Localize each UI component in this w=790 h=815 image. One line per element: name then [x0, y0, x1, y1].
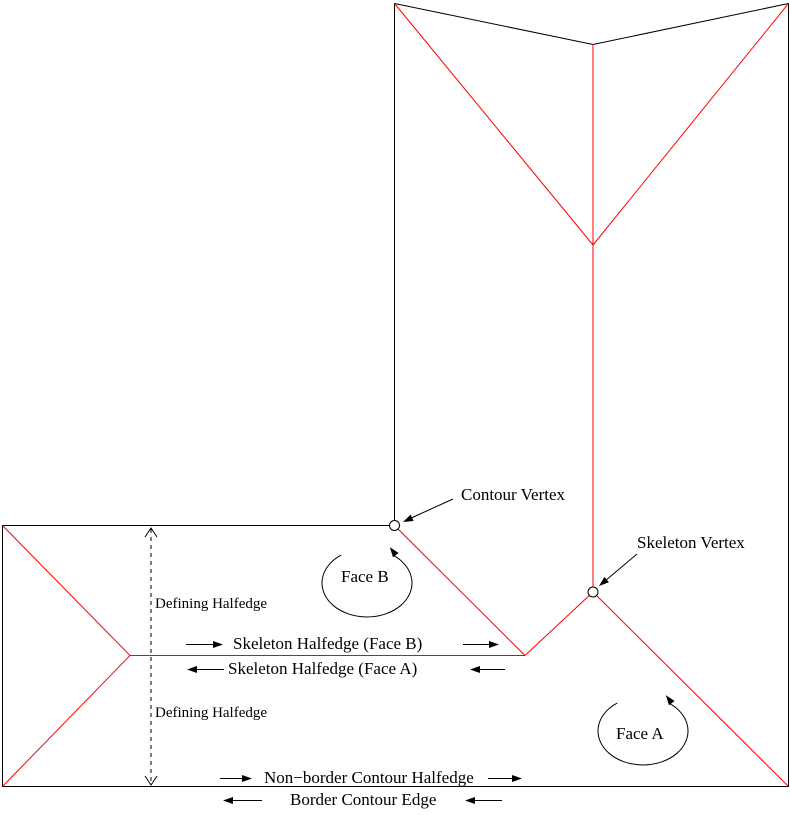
arrowhead-icon: [403, 515, 414, 522]
skeleton-bisector-top-left: [395, 4, 594, 246]
right-arrowhead-icon: [489, 641, 499, 648]
skeleton-edge-vertex-to-junction: [525, 592, 593, 656]
arrowhead-icon: [666, 695, 675, 705]
skeleton-vertex-label: Skeleton Vertex: [637, 533, 745, 552]
skeleton-halfedge-face-a-label: Skeleton Halfedge (Face A): [228, 659, 417, 678]
leader-line: [605, 554, 637, 581]
arrowhead-icon: [599, 577, 609, 586]
defining-halfedge-dashed-line: [145, 528, 157, 785]
right-arrowhead-icon: [512, 775, 522, 782]
defining-halfedge-bottom-label: Defining Halfedge: [155, 705, 267, 721]
skeleton-bisector-bottom-right: [593, 592, 789, 787]
vertex-markers: [390, 521, 599, 598]
left-arrowhead-icon: [187, 666, 197, 673]
straight-skeleton-figure: Contour Vertex Skeleton Vertex Face B Fa…: [0, 0, 790, 815]
contour-vertex-label: Contour Vertex: [461, 485, 566, 504]
diagram-svg: Contour Vertex Skeleton Vertex Face B Fa…: [0, 0, 790, 815]
leader-line: [409, 499, 453, 519]
skeleton-bisector-left-bottom: [3, 656, 131, 787]
face-a-label: Face A: [616, 724, 664, 743]
right-arrowhead-icon: [242, 775, 252, 782]
right-arrowhead-icon: [213, 641, 223, 648]
left-arrowhead-icon: [470, 666, 480, 673]
contour-vertex-leader: [403, 499, 453, 522]
skeleton-vertex-leader: [599, 554, 637, 586]
skeleton-bisector-top-right: [593, 4, 789, 246]
skeleton-bisector-left-top: [3, 526, 131, 656]
circular-arc: [322, 555, 412, 617]
contour-vertex-marker: [390, 521, 400, 531]
border-contour-edge-label: Border Contour Edge: [290, 790, 436, 809]
skeleton-vertex-marker: [588, 587, 598, 597]
left-arrowhead-icon: [223, 797, 233, 804]
defining-halfedge-top-label: Defining Halfedge: [155, 596, 267, 612]
left-arrowhead-icon: [465, 797, 475, 804]
skeleton-halfedge-face-b-label: Skeleton Halfedge (Face B): [233, 634, 422, 653]
arrowhead-icon: [390, 547, 399, 557]
text-labels: Contour Vertex Skeleton Vertex Face B Fa…: [155, 485, 745, 809]
face-b-label: Face B: [341, 567, 389, 586]
non-border-contour-halfedge-label: Non−border Contour Halfedge: [264, 768, 474, 787]
